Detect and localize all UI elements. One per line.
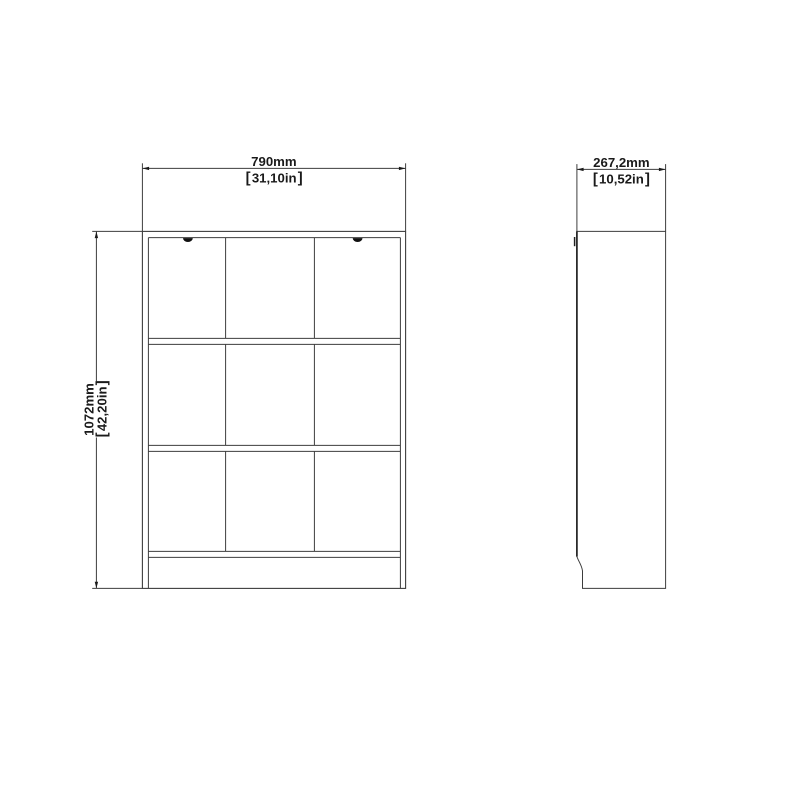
svg-text:790mm: 790mm — [251, 154, 296, 169]
svg-text:[ 31,10in ]: [ 31,10in ] — [246, 171, 303, 187]
svg-text:[ 42,20in ]: [ 42,20in ] — [94, 380, 110, 437]
svg-text:[ 10,52in ]: [ 10,52in ] — [593, 171, 650, 187]
svg-text:267,2mm: 267,2mm — [593, 155, 649, 170]
